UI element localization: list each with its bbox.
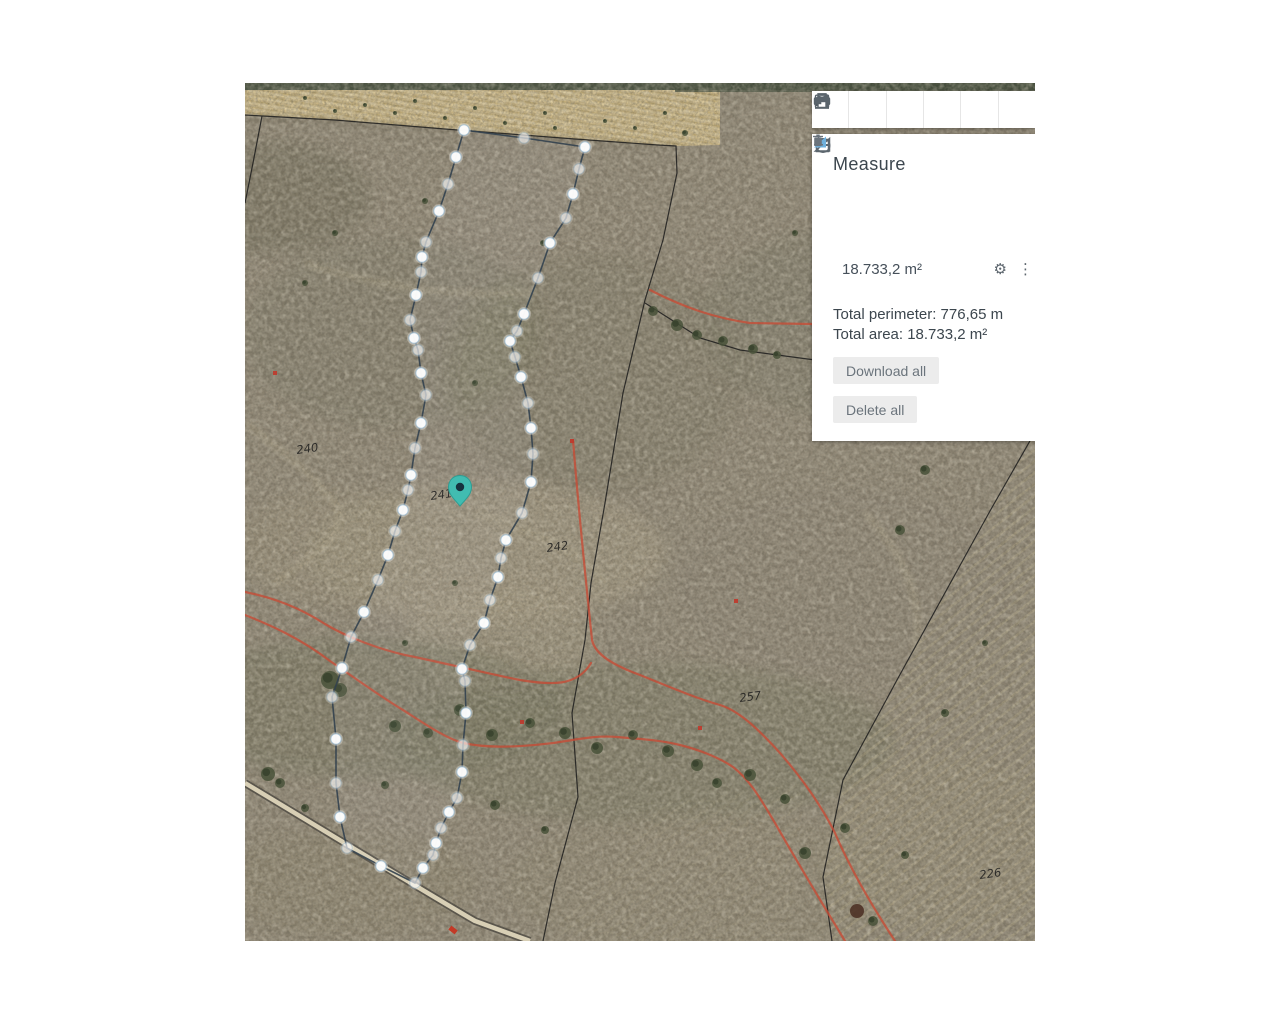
area-chart-icon[interactable] [848, 91, 885, 128]
delete-all-button[interactable]: Delete all [833, 396, 917, 423]
panel-title: Measure [833, 154, 1035, 175]
total-area: Total area: 18.733,2 m² [833, 325, 1035, 345]
page: 240241242257226 [0, 0, 1280, 1024]
angle-tool[interactable] [872, 202, 896, 226]
heart-icon[interactable] [886, 91, 923, 128]
measure-tools [833, 201, 1035, 227]
totals: Total perimeter: 776,65 m Total area: 18… [833, 305, 1035, 345]
kebab-menu-icon[interactable]: ⋮ [1018, 262, 1033, 277]
map-toolbar [812, 91, 1035, 128]
calendar-icon[interactable] [998, 91, 1035, 128]
gear-icon[interactable]: ⚙ [994, 262, 1007, 277]
measurement-result-row: 18.733,2 m² ⚙ ⋮ [833, 257, 1035, 281]
total-perimeter: Total perimeter: 776,65 m [833, 305, 1035, 325]
rectangle-tool[interactable] [911, 202, 935, 226]
download-all-button[interactable]: Download all [833, 357, 939, 384]
measure-panel: Measure [812, 134, 1035, 441]
trash-icon [812, 134, 824, 147]
share-icon[interactable] [923, 91, 960, 128]
print-icon[interactable] [960, 91, 997, 128]
map-canvas[interactable]: 240241242257226 [245, 83, 1035, 941]
circle-tool[interactable] [950, 202, 974, 226]
line-tool[interactable] [833, 202, 857, 226]
measurement-value: 18.733,2 m² [842, 261, 922, 278]
